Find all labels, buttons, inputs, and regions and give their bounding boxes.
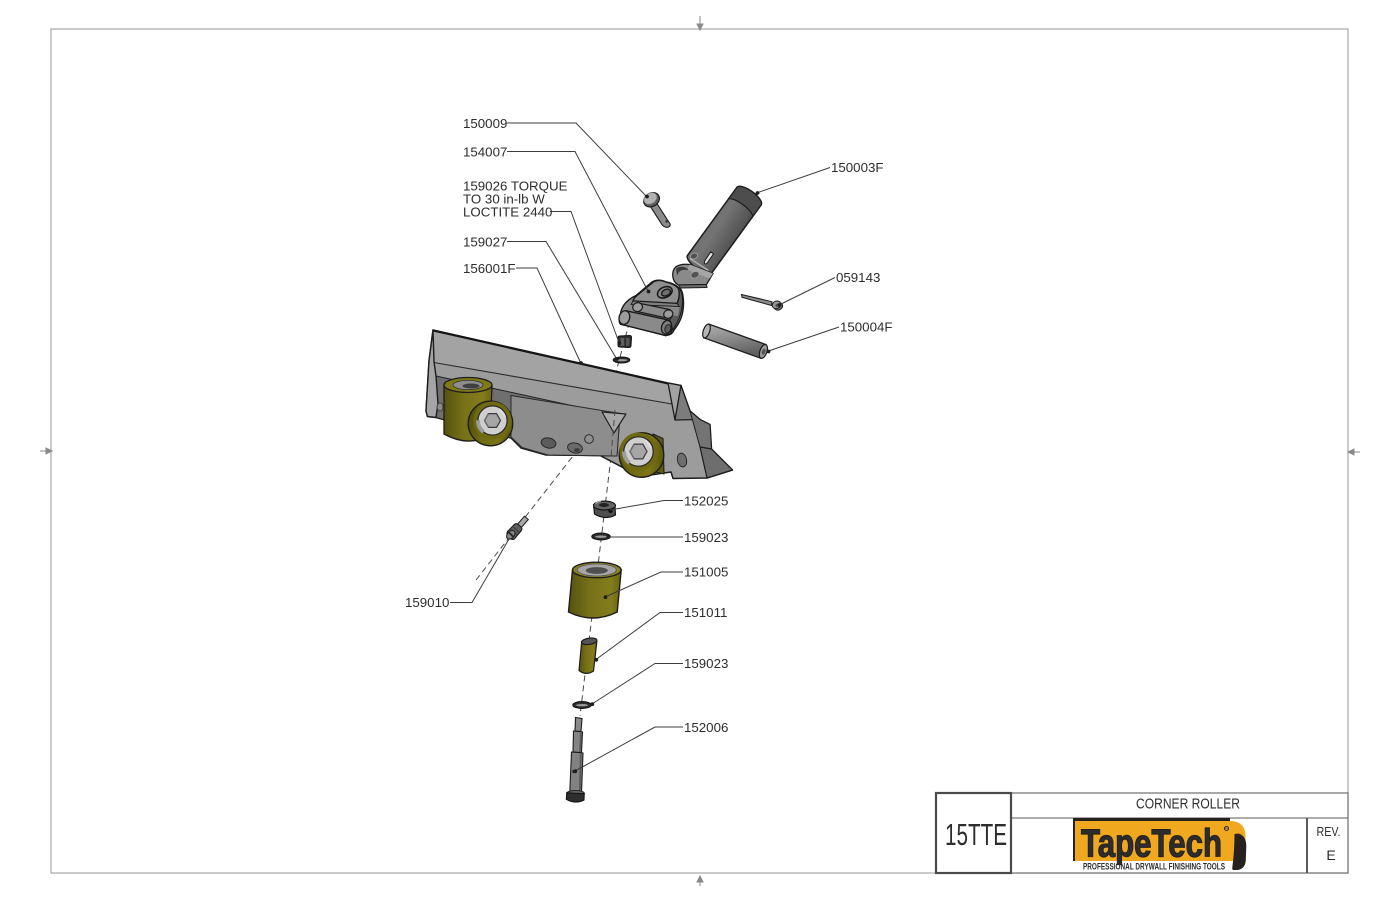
svg-text:059143: 059143 <box>836 270 880 285</box>
svg-text:151005: 151005 <box>684 565 728 580</box>
svg-text:156001F: 156001F <box>463 261 516 276</box>
svg-text:150004F: 150004F <box>840 320 893 335</box>
svg-text:E: E <box>1326 847 1335 863</box>
svg-text:CORNER ROLLER: CORNER ROLLER <box>1136 797 1240 813</box>
svg-text:150009: 150009 <box>463 116 507 131</box>
svg-text:152025: 152025 <box>684 494 728 509</box>
svg-text:159010: 159010 <box>405 595 449 610</box>
svg-text:LOCTITE 2440: LOCTITE 2440 <box>463 205 552 220</box>
svg-text:151011: 151011 <box>684 605 727 620</box>
svg-text:R: R <box>1225 827 1228 832</box>
svg-text:150003F: 150003F <box>831 160 884 175</box>
svg-text:PROFESSIONAL DRYWALL FINISHING: PROFESSIONAL DRYWALL FINISHING TOOLS <box>1083 861 1225 871</box>
svg-text:TapeTech: TapeTech <box>1081 823 1222 866</box>
svg-text:159027: 159027 <box>463 235 507 250</box>
svg-text:154007: 154007 <box>463 145 507 160</box>
svg-text:159023: 159023 <box>684 656 728 671</box>
svg-text:152006: 152006 <box>684 720 728 735</box>
svg-text:159023: 159023 <box>684 530 728 545</box>
svg-text:REV.: REV. <box>1317 824 1341 839</box>
svg-text:15TTE: 15TTE <box>945 817 1007 852</box>
